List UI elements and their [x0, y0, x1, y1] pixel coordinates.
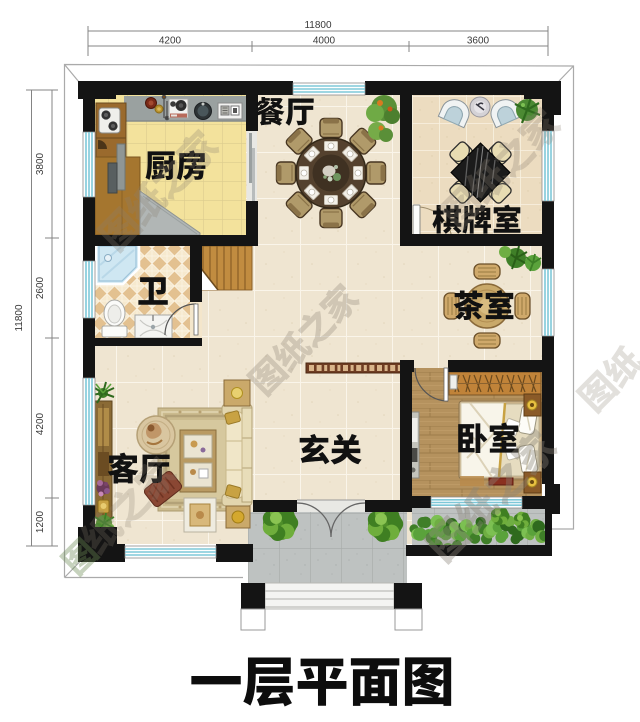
svg-text:2600: 2600 — [35, 276, 46, 299]
svg-text:4200: 4200 — [159, 36, 182, 47]
svg-text:1200: 1200 — [35, 510, 46, 533]
svg-text:11800: 11800 — [14, 304, 25, 332]
svg-text:11800: 11800 — [304, 20, 332, 31]
svg-text:4000: 4000 — [313, 36, 336, 47]
svg-text:3600: 3600 — [467, 36, 490, 47]
svg-text:3800: 3800 — [35, 152, 46, 175]
svg-text:4200: 4200 — [35, 412, 46, 435]
